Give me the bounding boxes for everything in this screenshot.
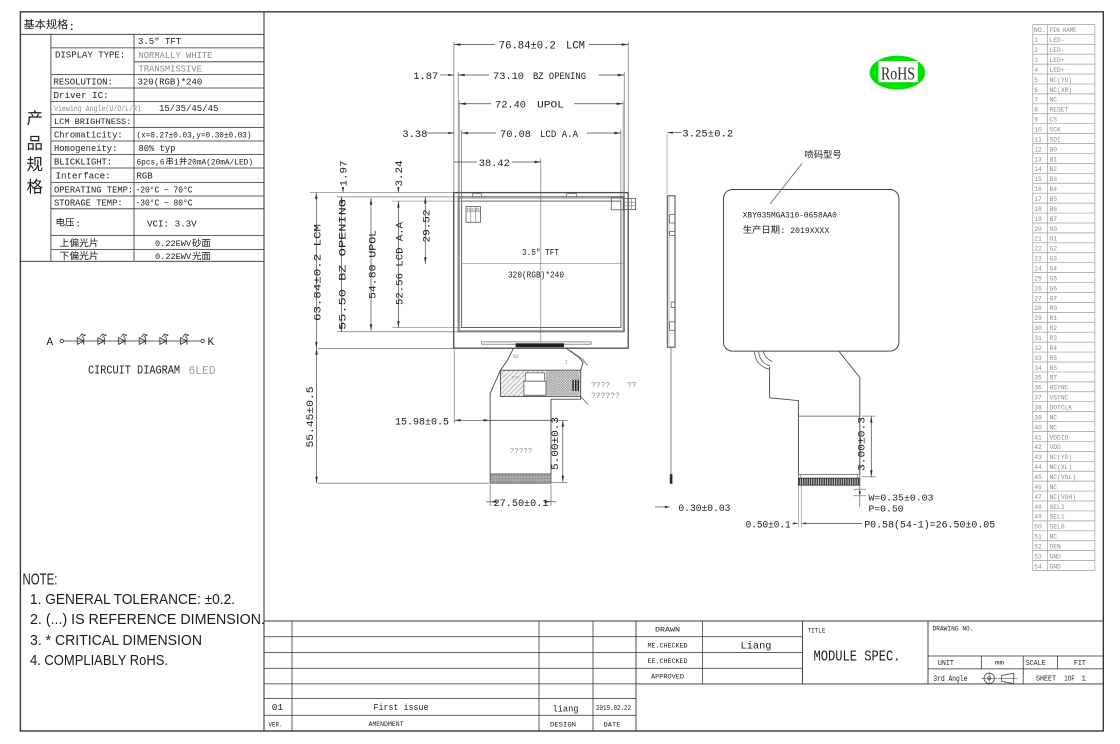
svg-text:First issue: First issue — [374, 702, 429, 713]
svg-text:70.08: 70.08 — [500, 129, 531, 141]
svg-text:38: 38 — [1034, 405, 1042, 412]
svg-text:LED+: LED+ — [1050, 67, 1065, 74]
svg-text:11: 11 — [1034, 136, 1042, 143]
svg-text:LED+: LED+ — [1050, 57, 1065, 64]
svg-text:OPERATING TEMP:: OPERATING TEMP: — [54, 186, 133, 196]
svg-text:24: 24 — [1034, 265, 1042, 272]
svg-text:NC(YD): NC(YD) — [1050, 454, 1073, 461]
svg-text:6: 6 — [1034, 87, 1038, 94]
svg-text:4: 4 — [1034, 67, 1038, 74]
svg-text:DISPLAY TYPE:: DISPLAY TYPE: — [55, 51, 125, 61]
svg-text:NC: NC — [1050, 424, 1058, 431]
svg-text:42: 42 — [1034, 444, 1042, 451]
svg-text:23: 23 — [1034, 256, 1042, 263]
svg-text:DRAWN: DRAWN — [655, 627, 680, 635]
svg-text:G1: G1 — [1050, 236, 1058, 243]
svg-text:80% typ: 80% typ — [139, 144, 176, 154]
svg-text:20mA(20mA/LED): 20mA(20mA/LED) — [188, 160, 254, 168]
svg-text:37: 37 — [1034, 395, 1042, 402]
svg-text:Driver IC:: Driver IC: — [54, 90, 109, 101]
svg-text:40: 40 — [1034, 424, 1042, 431]
svg-text::: : — [69, 22, 76, 34]
svg-text:49: 49 — [1034, 514, 1042, 521]
svg-text:25: 25 — [1034, 275, 1042, 282]
svg-text:54: 54 — [1034, 563, 1042, 570]
svg-text:1.87: 1.87 — [413, 72, 438, 83]
svg-text:52: 52 — [1034, 544, 1042, 551]
svg-text:0.22EWV: 0.22EWV — [155, 239, 192, 249]
svg-text:SCALE: SCALE — [1026, 660, 1046, 668]
svg-text:SDI: SDI — [1050, 136, 1062, 143]
svg-text:-30°C ~ 80°C: -30°C ~ 80°C — [136, 199, 193, 209]
svg-text:15: 15 — [1034, 176, 1042, 183]
svg-text:76.84±0.2: 76.84±0.2 — [499, 40, 556, 52]
svg-text:NC: NC — [1050, 97, 1058, 104]
svg-text:G7: G7 — [1050, 295, 1058, 302]
svg-text:52.56 LCD A.A: 52.56 LCD A.A — [395, 222, 406, 305]
svg-text:??????: ?????? — [591, 392, 620, 401]
svg-text:27: 27 — [1034, 295, 1042, 302]
svg-text:16: 16 — [1034, 186, 1042, 193]
svg-text:0.50±0.1: 0.50±0.1 — [746, 520, 791, 531]
svg-text:3.24: 3.24 — [395, 161, 406, 187]
svg-text:K: K — [208, 337, 215, 349]
svg-text:G5: G5 — [1050, 275, 1058, 282]
svg-text:RESET: RESET — [1050, 107, 1069, 114]
svg-text:B6: B6 — [1050, 206, 1058, 213]
svg-text:NC(VGL): NC(VGL) — [1050, 474, 1076, 481]
svg-text:5.00±0.3: 5.00±0.3 — [551, 417, 562, 470]
svg-text:39: 39 — [1034, 414, 1042, 421]
svg-text:RESOLUTION:: RESOLUTION: — [54, 78, 113, 88]
svg-text:01: 01 — [272, 702, 284, 713]
svg-text:3.5" TFT: 3.5" TFT — [522, 247, 559, 258]
svg-text:B1: B1 — [1050, 156, 1058, 163]
svg-text:13: 13 — [1034, 156, 1042, 163]
svg-text:VCI: 3.3V: VCI: 3.3V — [147, 218, 197, 229]
svg-text:2: 2 — [1034, 47, 1038, 54]
svg-text:33: 33 — [1034, 355, 1042, 362]
svg-text:BLICKLIGHT:: BLICKLIGHT: — [54, 158, 112, 168]
svg-text:26: 26 — [1034, 285, 1042, 292]
svg-text:LED-: LED- — [1050, 37, 1065, 44]
svg-text:2. (...) IS REFERENCE DIMENSIO: 2. (...) IS REFERENCE DIMENSION. — [30, 611, 265, 628]
svg-text:63.84±0.2 LCM: 63.84±0.2 LCM — [313, 224, 324, 321]
svg-text:EE.CHECKED: EE.CHECKED — [648, 658, 688, 666]
svg-text:B2: B2 — [1050, 166, 1058, 173]
svg-text:GND: GND — [1050, 553, 1062, 560]
svg-text:6pcs,6: 6pcs,6 — [137, 160, 165, 168]
svg-text:10: 10 — [1034, 126, 1042, 133]
svg-text:5: 5 — [1034, 77, 1038, 84]
svg-text:46: 46 — [1034, 484, 1042, 491]
svg-text:???: ??? — [512, 375, 520, 381]
svg-text:UPOL: UPOL — [537, 100, 564, 112]
svg-text:41: 41 — [1034, 434, 1042, 441]
svg-text:20: 20 — [1034, 226, 1042, 233]
svg-text:45: 45 — [1034, 474, 1042, 481]
svg-text:3.5" TFT: 3.5" TFT — [138, 37, 182, 47]
svg-text:36: 36 — [1034, 385, 1042, 392]
svg-text:22: 22 — [1034, 246, 1042, 253]
svg-text:DRAWING NO.: DRAWING NO. — [933, 626, 974, 634]
svg-text:LED-: LED- — [1050, 47, 1065, 54]
svg-text:LCM: LCM — [566, 40, 585, 52]
svg-text:PIN NAME: PIN NAME — [1050, 27, 1077, 34]
svg-text:2019.02.22: 2019.02.22 — [596, 705, 631, 713]
svg-text:SEL2: SEL2 — [1050, 504, 1065, 511]
svg-text:1. GENERAL TOLERANCE: ±0.2.: 1. GENERAL TOLERANCE: ±0.2. — [30, 591, 235, 608]
svg-text::: : — [76, 219, 81, 229]
svg-text:P=0.50: P=0.50 — [869, 504, 904, 515]
svg-text:VDDID: VDDID — [1050, 434, 1069, 441]
svg-text:R0: R0 — [1050, 305, 1058, 312]
svg-text:R2: R2 — [1050, 325, 1058, 332]
svg-text:NC: NC — [1050, 414, 1058, 421]
svg-text:CIRCUIT DIAGRAM: CIRCUIT DIAGRAM — [88, 365, 180, 378]
svg-text:G2: G2 — [1050, 246, 1058, 253]
svg-text:TRANSMISSIVE: TRANSMISSIVE — [139, 65, 202, 75]
svg-text:NC(XL): NC(XL) — [1050, 464, 1073, 471]
svg-text:NOTE:: NOTE: — [23, 572, 58, 589]
svg-text:AMENDMENT: AMENDMENT — [369, 721, 404, 729]
svg-text:R3: R3 — [1050, 335, 1058, 342]
svg-text:3.00±0.3: 3.00±0.3 — [856, 417, 868, 471]
svg-text:VER.: VER. — [269, 721, 283, 729]
svg-text:-20°C ~ 70°C: -20°C ~ 70°C — [136, 186, 193, 196]
svg-text:44: 44 — [1034, 464, 1042, 471]
svg-text:G4: G4 — [1050, 265, 1058, 272]
svg-text:1: 1 — [1082, 676, 1086, 684]
svg-text:54.80 UPOL: 54.80 UPOL — [369, 230, 380, 299]
svg-text:ME.CHECKED: ME.CHECKED — [648, 642, 688, 650]
svg-text:17: 17 — [1034, 196, 1042, 203]
svg-text:R1: R1 — [1050, 315, 1058, 322]
svg-text:18: 18 — [1034, 206, 1042, 213]
svg-text:LCD A.A: LCD A.A — [540, 129, 579, 141]
svg-text:DATE: DATE — [604, 721, 621, 729]
svg-text:19: 19 — [1034, 216, 1042, 223]
svg-text:BZ OPENING: BZ OPENING — [533, 71, 586, 83]
svg-text:15/35/45/45: 15/35/45/45 — [159, 104, 218, 114]
svg-text:31: 31 — [1034, 335, 1042, 342]
svg-text:G3: G3 — [1050, 256, 1058, 263]
svg-text:92: 92 — [513, 354, 519, 360]
svg-text:2019XXXX: 2019XXXX — [790, 227, 829, 236]
svg-text:mm: mm — [995, 660, 1004, 668]
svg-text:HSYNC: HSYNC — [1050, 385, 1069, 392]
svg-text:APPROVED: APPROVED — [651, 674, 684, 682]
svg-text:55.50 BZ OPENING: 55.50 BZ OPENING — [338, 199, 349, 330]
svg-text:6LED: 6LED — [189, 365, 216, 378]
svg-text:B3: B3 — [1050, 176, 1058, 183]
svg-text:B7: B7 — [1050, 216, 1058, 223]
svg-text:29: 29 — [1034, 315, 1042, 322]
svg-text:14: 14 — [1034, 166, 1042, 173]
svg-text:DOTCLK: DOTCLK — [1050, 405, 1073, 412]
svg-text:NORMALLY WHITE: NORMALLY WHITE — [139, 51, 213, 61]
svg-text:NC: NC — [1050, 534, 1058, 541]
svg-text:NC(YU): NC(YU) — [1050, 77, 1073, 84]
svg-text:29.52: 29.52 — [422, 210, 433, 243]
svg-text:B4: B4 — [1050, 186, 1058, 193]
svg-text:15.98±0.5: 15.98±0.5 — [395, 417, 449, 428]
svg-text:28: 28 — [1034, 305, 1042, 312]
svg-text:NC(VGH): NC(VGH) — [1050, 494, 1076, 501]
svg-text:3.38: 3.38 — [402, 130, 427, 141]
svg-text:0.22EWV: 0.22EWV — [155, 252, 192, 262]
svg-text:30: 30 — [1034, 325, 1042, 332]
svg-text:G0: G0 — [1050, 226, 1058, 233]
svg-text:12: 12 — [1034, 146, 1042, 153]
svg-text:P0.58(54-1)=26.50±0.05: P0.58(54-1)=26.50±0.05 — [864, 519, 995, 531]
svg-text:Viewing Angle(U/D/L/R): Viewing Angle(U/D/L/R) — [54, 104, 141, 114]
svg-text:SEL0: SEL0 — [1050, 524, 1065, 531]
svg-text:34: 34 — [1034, 365, 1042, 372]
svg-text:G6: G6 — [1050, 285, 1058, 292]
svg-text:4. COMPLIABLY RoHS.: 4. COMPLIABLY RoHS. — [30, 652, 168, 669]
svg-text:51: 51 — [1034, 534, 1042, 541]
svg-text:GND: GND — [1050, 563, 1062, 570]
svg-text:DEN: DEN — [1050, 544, 1062, 551]
svg-text:SHEET: SHEET — [1036, 676, 1057, 684]
svg-text:21: 21 — [1034, 236, 1042, 243]
svg-text:8: 8 — [1034, 107, 1038, 114]
svg-text:RGB: RGB — [137, 172, 154, 182]
svg-text:320(RGB)*240: 320(RGB)*240 — [508, 269, 564, 280]
svg-text:UNIT: UNIT — [938, 660, 955, 668]
svg-text:liang: liang — [553, 704, 579, 715]
svg-text:MODULE SPEC.: MODULE SPEC. — [814, 650, 901, 666]
svg-text:38.42: 38.42 — [479, 158, 510, 170]
svg-text:R7: R7 — [1050, 375, 1058, 382]
svg-text:VSYNC: VSYNC — [1050, 395, 1069, 402]
svg-text:3. * CRITICAL DIMENSION: 3. * CRITICAL DIMENSION — [30, 632, 202, 649]
svg-text:SEL1: SEL1 — [1050, 514, 1065, 521]
svg-text:(x=0.27±0.03,y=0.30±0.03): (x=0.27±0.03,y=0.30±0.03) — [137, 132, 252, 141]
svg-text:W=0.35±0.03: W=0.35±0.03 — [869, 493, 934, 504]
svg-text:?????: ????? — [510, 448, 533, 456]
svg-text:SCK: SCK — [1050, 126, 1062, 133]
svg-text:CS: CS — [1050, 117, 1058, 124]
svg-text:1.97: 1.97 — [340, 161, 351, 187]
svg-text:27.50±0.1: 27.50±0.1 — [494, 499, 549, 510]
svg-text:R6: R6 — [1050, 365, 1058, 372]
svg-text:Interface:: Interface: — [56, 171, 111, 182]
svg-text:NO.: NO. — [1034, 27, 1046, 34]
svg-text:73.10: 73.10 — [493, 71, 524, 83]
svg-text:3.25±0.2: 3.25±0.2 — [682, 129, 733, 141]
svg-text:72.40: 72.40 — [495, 100, 526, 112]
svg-text:B0: B0 — [1050, 146, 1058, 153]
svg-text:50: 50 — [1034, 524, 1042, 531]
svg-text:320(RGB)*240: 320(RGB)*240 — [138, 78, 203, 88]
svg-text:0.30±0.03: 0.30±0.03 — [678, 504, 730, 515]
svg-text:47: 47 — [1034, 494, 1042, 501]
svg-text:43: 43 — [1034, 454, 1042, 461]
svg-text:VDD: VDD — [1050, 444, 1062, 451]
svg-text:??: ?? — [627, 382, 637, 391]
svg-text:FIT: FIT — [1074, 660, 1087, 668]
svg-text:NC(XR): NC(XR) — [1050, 87, 1073, 94]
svg-text:1: 1 — [174, 160, 179, 168]
svg-text:1OF: 1OF — [1064, 676, 1075, 684]
svg-text:R4: R4 — [1050, 345, 1058, 352]
svg-text:R5: R5 — [1050, 355, 1058, 362]
svg-text:1: 1 — [1034, 37, 1038, 44]
svg-text:9: 9 — [1034, 117, 1038, 124]
svg-text:55.45±0.5: 55.45±0.5 — [306, 387, 317, 448]
svg-text:XBY035MGA310-0658AA0: XBY035MGA310-0658AA0 — [743, 212, 837, 221]
svg-text:TITLE: TITLE — [808, 627, 826, 635]
svg-text:35: 35 — [1034, 375, 1042, 382]
svg-text:1: 1 — [565, 360, 568, 366]
svg-text:RGB: RGB — [467, 208, 481, 213]
svg-text:STORAGE TEMP:: STORAGE TEMP: — [54, 199, 123, 209]
svg-text:48: 48 — [1034, 504, 1042, 511]
svg-text:B5: B5 — [1050, 196, 1058, 203]
svg-text:Liang: Liang — [741, 641, 772, 653]
svg-text:????: ???? — [591, 382, 610, 391]
svg-text:LCM BRIGHTNESS:: LCM BRIGHTNESS: — [54, 117, 131, 127]
svg-text:53: 53 — [1034, 553, 1042, 560]
svg-text:DESIGN: DESIGN — [550, 721, 576, 729]
svg-text:7: 7 — [1034, 97, 1038, 104]
svg-text:Chromaticity:: Chromaticity: — [54, 131, 123, 141]
svg-text::: : — [781, 227, 786, 236]
svg-text:32: 32 — [1034, 345, 1042, 352]
svg-text:RoHS: RoHS — [881, 64, 915, 84]
svg-text:Homogeneity:: Homogeneity: — [54, 144, 117, 154]
svg-text:3: 3 — [1034, 57, 1038, 64]
svg-text:A: A — [47, 337, 54, 349]
svg-text:3rd Angle: 3rd Angle — [933, 674, 967, 684]
svg-text:NC: NC — [1050, 484, 1058, 491]
